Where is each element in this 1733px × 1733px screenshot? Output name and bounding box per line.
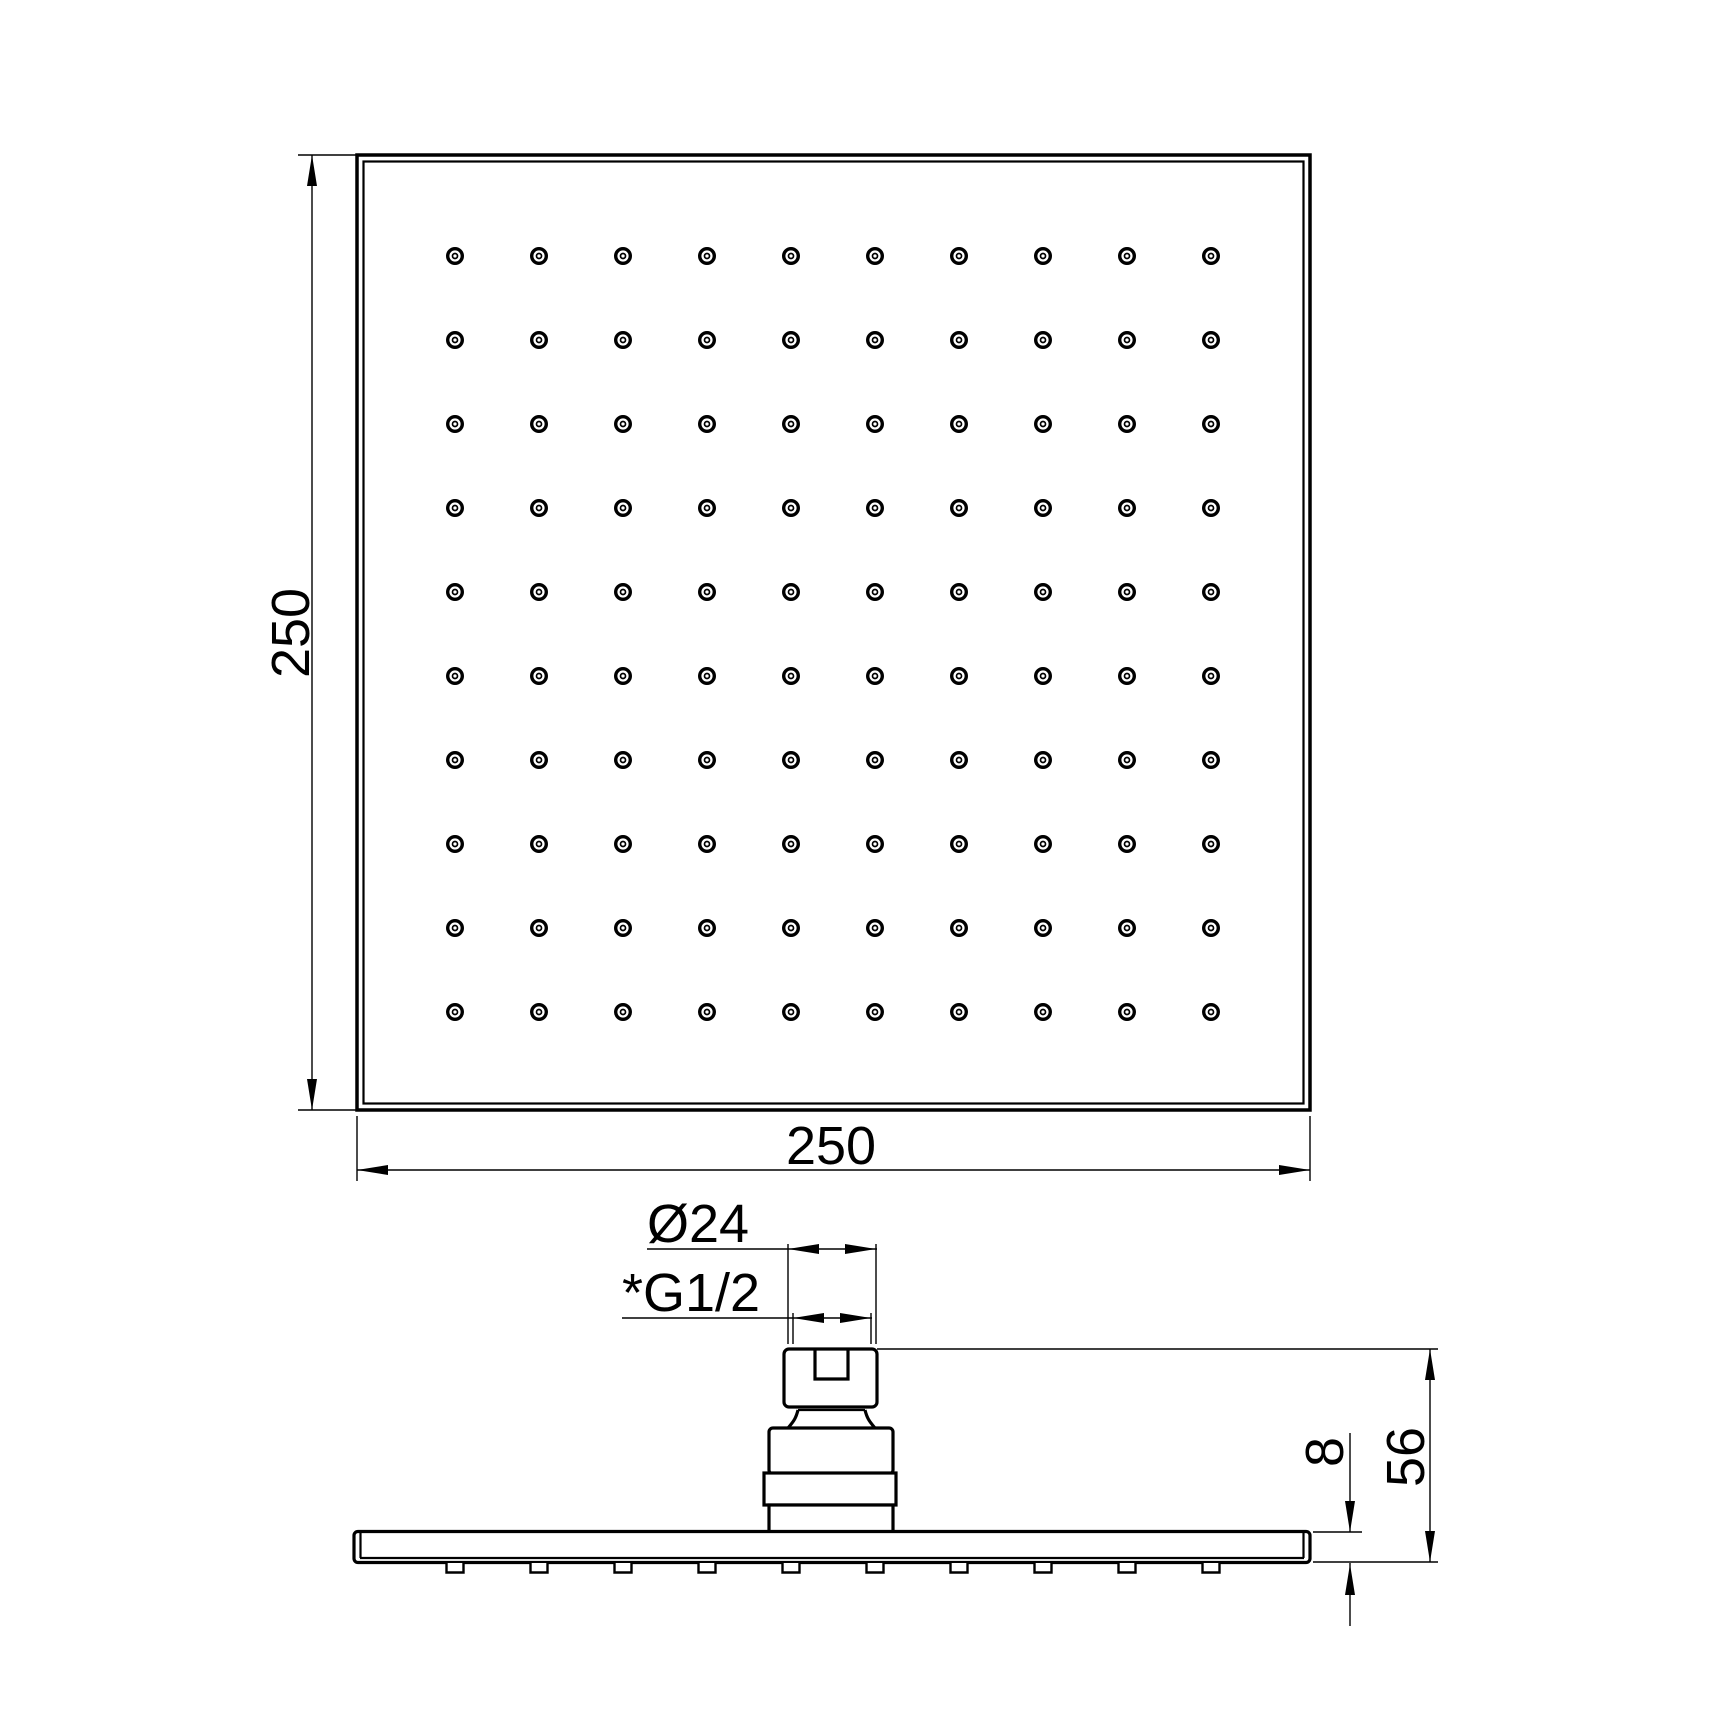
nozzle-center [705, 338, 710, 343]
nozzle-center [789, 590, 794, 595]
nozzle-center [957, 338, 962, 343]
nozzle-center [1041, 254, 1046, 259]
arrowhead-up-icon [1425, 1349, 1435, 1380]
nozzle-center [705, 926, 710, 931]
nozzle-center [537, 674, 542, 679]
arrowhead-down-icon [1345, 1501, 1355, 1532]
nozzle-bump [951, 1563, 968, 1573]
top-view [357, 155, 1310, 1110]
dimension-plate-thickness-8: 8 [1295, 1433, 1362, 1626]
nozzle-center [1209, 254, 1214, 259]
nozzle-center [789, 926, 794, 931]
connector-nut-band [764, 1473, 896, 1505]
nozzle-center [453, 254, 458, 259]
nozzle-center [705, 674, 710, 679]
nozzle-center [453, 674, 458, 679]
nozzle-center [453, 926, 458, 931]
nozzle-center [537, 758, 542, 763]
nozzle-center [705, 1010, 710, 1015]
nozzle-center [957, 926, 962, 931]
nozzle-bump [1203, 1563, 1220, 1573]
nozzle-center [1041, 758, 1046, 763]
arrowhead-left-icon [788, 1244, 819, 1254]
nozzle-center [957, 506, 962, 511]
nozzle-center [957, 422, 962, 427]
neck-left-edge [788, 1410, 798, 1428]
nozzle-bump [531, 1563, 548, 1573]
dimension-width-250: 250 [357, 1116, 1310, 1181]
dimension-text-total-height: 56 [1376, 1427, 1436, 1487]
connector-upper-body [769, 1428, 893, 1474]
nozzle-center [789, 254, 794, 259]
arrowhead-right-icon [845, 1244, 876, 1254]
nozzle-center [705, 422, 710, 427]
arrowhead-right-icon [840, 1313, 871, 1323]
shower-face-outer-square [357, 155, 1310, 1110]
nozzle-center [1125, 1010, 1130, 1015]
nozzle-center [621, 422, 626, 427]
nozzle-center [453, 338, 458, 343]
nozzle-center [1041, 338, 1046, 343]
nozzle-center [537, 254, 542, 259]
nozzle-bump [447, 1563, 464, 1573]
nozzle-center [537, 338, 542, 343]
nozzle-center [621, 758, 626, 763]
nozzle-bump [1035, 1563, 1052, 1573]
nozzle-center [1041, 842, 1046, 847]
dimension-text-width: 250 [786, 1116, 876, 1176]
side-view [354, 1349, 1310, 1573]
nozzle-center [789, 338, 794, 343]
nozzle-bump [699, 1563, 716, 1573]
nozzle-center [1125, 758, 1130, 763]
nozzle-center [873, 590, 878, 595]
neck-right-edge [865, 1410, 875, 1428]
nozzle-bump [615, 1563, 632, 1573]
arrowhead-left-icon [793, 1313, 824, 1323]
nozzle-center [1125, 338, 1130, 343]
nozzle-center [873, 506, 878, 511]
dimension-text-thread: *G1/2 [622, 1263, 760, 1323]
arrowhead-left-icon [357, 1165, 388, 1175]
nozzle-center [705, 842, 710, 847]
nozzle-center [873, 338, 878, 343]
nozzle-center [1209, 758, 1214, 763]
nozzle-center [1125, 254, 1130, 259]
dimension-height-250: 250 [261, 155, 357, 1110]
nozzle-center [1041, 422, 1046, 427]
nozzle-center [957, 842, 962, 847]
nozzle-bump [867, 1563, 884, 1573]
nozzle-center [1209, 926, 1214, 931]
nozzle-center [1041, 674, 1046, 679]
nozzle-center [1041, 506, 1046, 511]
nozzle-center [453, 590, 458, 595]
nozzle-center [621, 842, 626, 847]
dimension-thread-g12: *G1/2 [622, 1263, 872, 1344]
nozzle-center [537, 590, 542, 595]
nozzle-center [873, 842, 878, 847]
nozzle-center [1209, 506, 1214, 511]
nozzle-center [1125, 506, 1130, 511]
nozzle-center [957, 674, 962, 679]
nozzle-center [621, 926, 626, 931]
nozzle-center [873, 926, 878, 931]
nozzle-center [873, 674, 878, 679]
nozzle-center [621, 338, 626, 343]
nozzle-center [1209, 1010, 1214, 1015]
nozzle-center [873, 1010, 878, 1015]
nozzle-center [705, 506, 710, 511]
nozzle-bump-row [447, 1563, 1220, 1573]
nozzle-center [1209, 842, 1214, 847]
nozzle-bump [1119, 1563, 1136, 1573]
nozzle-center [873, 254, 878, 259]
nozzle-center [789, 674, 794, 679]
nozzle-center [453, 1010, 458, 1015]
nozzle-center [621, 1010, 626, 1015]
arrowhead-up-icon [1345, 1564, 1355, 1595]
nozzle-center [1125, 422, 1130, 427]
nozzle-center [705, 758, 710, 763]
nozzle-center [1209, 590, 1214, 595]
nozzle-center [1041, 926, 1046, 931]
nozzle-center [873, 422, 878, 427]
nozzle-center [621, 506, 626, 511]
drawing-canvas: 250 250 Ø24 [0, 0, 1733, 1733]
nozzle-center [453, 758, 458, 763]
nozzle-center [705, 590, 710, 595]
nozzle-center [453, 506, 458, 511]
nozzle-center [957, 590, 962, 595]
nozzle-center [1125, 590, 1130, 595]
nozzle-center [1041, 1010, 1046, 1015]
nozzle-center [1209, 422, 1214, 427]
dimension-text-plate-thickness: 8 [1295, 1437, 1355, 1467]
nozzle-center [537, 842, 542, 847]
nozzle-center [537, 422, 542, 427]
nozzle-center [957, 758, 962, 763]
nozzle-center [705, 254, 710, 259]
nozzle-center [789, 758, 794, 763]
nozzle-center [1209, 674, 1214, 679]
arrowhead-down-icon [307, 1079, 317, 1110]
nozzle-center [537, 506, 542, 511]
connector-lower-body [769, 1505, 893, 1532]
nozzle-bump [783, 1563, 800, 1573]
nozzle-center [957, 1010, 962, 1015]
nozzle-center [789, 422, 794, 427]
dimension-text-diameter: Ø24 [647, 1194, 749, 1254]
nozzle-center [789, 842, 794, 847]
arrowhead-right-icon [1279, 1165, 1310, 1175]
nozzle-center [789, 506, 794, 511]
nozzle-center [1125, 926, 1130, 931]
nozzle-center [453, 422, 458, 427]
nozzle-center [621, 590, 626, 595]
nozzle-center [1125, 674, 1130, 679]
technical-drawing: 250 250 Ø24 [0, 0, 1733, 1733]
arrowhead-down-icon [1425, 1531, 1435, 1562]
nozzle-center [621, 254, 626, 259]
nozzle-center [1125, 842, 1130, 847]
nozzle-center [957, 254, 962, 259]
nozzle-center [621, 674, 626, 679]
nozzle-center [789, 1010, 794, 1015]
nozzle-center [537, 1010, 542, 1015]
nozzle-center [1041, 590, 1046, 595]
arrowhead-up-icon [307, 155, 317, 186]
nozzle-center [537, 926, 542, 931]
nozzle-center [1209, 338, 1214, 343]
dimension-text-height: 250 [261, 588, 321, 678]
nozzle-center [453, 842, 458, 847]
nozzle-center [873, 758, 878, 763]
